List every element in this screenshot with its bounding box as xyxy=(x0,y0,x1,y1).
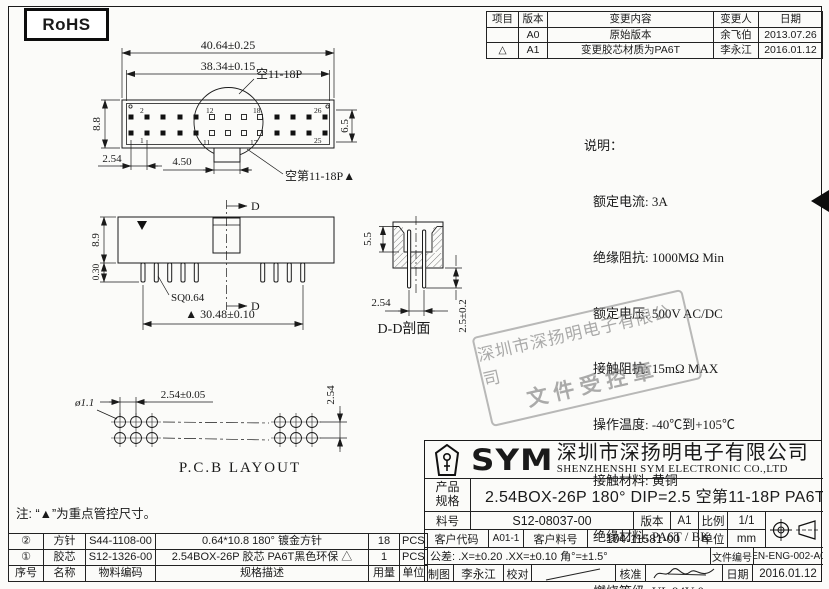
dim-inner-width: 38.34±0.15 xyxy=(201,59,256,73)
parts-row: ① 胶芯 S12-1326-00 2.54BOX-26P 胶芯 PA6T黑色环保… xyxy=(9,550,428,566)
date-label: 日期 xyxy=(723,565,753,582)
dim-opening-height: 6.5 xyxy=(339,119,351,133)
pcb-holes xyxy=(115,417,318,444)
part-no-label: 料号 xyxy=(425,512,471,530)
pin-number: 2 xyxy=(140,106,144,115)
section-title: D-D剖面 xyxy=(378,321,431,337)
part-name: 胶芯 xyxy=(44,550,86,566)
parts-row: ② 方针 S44-1108-00 0.64*10.8 180° 镀金方针 18 … xyxy=(9,534,428,550)
scale-label: 比例 xyxy=(699,512,728,530)
checked-signature xyxy=(534,566,614,582)
parts-table: ② 方针 S44-1108-00 0.64*10.8 180° 镀金方针 18 … xyxy=(8,533,428,582)
part-no-circle: ① xyxy=(9,550,44,566)
dim-body-height: 8.8 xyxy=(91,117,103,131)
pin-number: 17 xyxy=(250,138,258,147)
part-unit: PCS xyxy=(400,550,428,566)
pin-square-label: SQ0.64 xyxy=(171,292,205,304)
part-code: S12-1326-00 xyxy=(86,550,156,566)
part-desc: 2.54BOX-26P 胶芯 PA6T黑色环保 △ xyxy=(156,550,369,566)
dim-pin-span: ▲ 30.48±0.10 xyxy=(185,307,254,321)
control-dimension-note: 注: “▲”为重点管控尺寸。 xyxy=(16,503,156,522)
dim-side-height: 8.9 xyxy=(90,233,102,247)
drawing-sheet: RoHS 项目 版本 变更内容 变更人 日期 A0 原始版本 余飞伯 2013.… xyxy=(0,0,829,589)
part-qty: 1 xyxy=(369,550,400,566)
pins-solid xyxy=(129,115,328,136)
section-mark-top: D xyxy=(251,199,260,213)
pin-number: 1 xyxy=(140,136,144,145)
projection-angle-icon xyxy=(769,515,821,545)
dim-hole-diameter: ø1.1 xyxy=(74,397,94,409)
label-empty-pins-top: 空11-18P xyxy=(256,67,303,81)
dim-pin-protrusion: 2.5±0.2 xyxy=(457,299,469,333)
part-no-value: S12-08037-00 xyxy=(471,512,634,530)
product-spec-label-2: 规格 xyxy=(435,495,459,509)
inspection-triangle-mark xyxy=(137,221,147,230)
dim-pcb-pitch-h: 2.54±0.05 xyxy=(161,389,206,401)
polarizing-notch xyxy=(214,148,240,162)
parts-col-desc: 规格描述 xyxy=(156,566,369,582)
pin-number: 18 xyxy=(253,106,261,115)
part-code: S44-1108-00 xyxy=(86,534,156,550)
customer-code-label: 客户代码 xyxy=(425,530,489,548)
doc-no-value: EN-ENG-002-A0 xyxy=(754,548,823,565)
tolerance-note: 公差: .X=±0.20 .XX=±0.10 角°=±1.5° xyxy=(425,548,711,565)
pin-number: 26 xyxy=(314,106,322,115)
section-view-drawing: 5.5 2.54 2.5±0.2 D-D剖面 xyxy=(362,216,469,337)
sym-logo-icon xyxy=(431,444,463,476)
side-view-pins xyxy=(141,263,305,282)
approved-signature xyxy=(648,565,720,582)
part-name: 方针 xyxy=(44,534,86,550)
doc-no-label: 文件编号 xyxy=(711,548,754,565)
pin-number: 12 xyxy=(206,106,214,115)
parts-col-unit: 单位 xyxy=(400,566,428,582)
dim-standoff: 0.30 xyxy=(92,263,102,280)
pcb-layout-title: P.C.B LAYOUT xyxy=(179,460,301,476)
edge-center-mark xyxy=(811,190,829,212)
pin-number: 25 xyxy=(314,136,322,145)
parts-col-code: 物料编码 xyxy=(86,566,156,582)
parts-col-no: 序号 xyxy=(9,566,44,582)
part-unit: PCS xyxy=(400,534,428,550)
pcb-crosshairs xyxy=(111,413,321,447)
parts-col-qty: 用量 xyxy=(369,566,400,582)
version-value: A1 xyxy=(671,512,699,530)
pcb-layout-drawing: ø1.1 2.54±0.05 2.54 P.C.B LAYOUT xyxy=(74,385,347,476)
part-desc: 0.64*10.8 180° 镀金方针 xyxy=(156,534,369,550)
drawn-by: 李永江 xyxy=(454,565,504,582)
customer-part-label: 客户料号 xyxy=(524,530,588,548)
label-empty-pins-bottom: 空第11-18P▲ xyxy=(285,169,355,183)
pin-number: 11 xyxy=(203,138,210,147)
checked-label: 校对 xyxy=(504,565,532,582)
top-view-drawing: 40.64±0.25 38.34±0.15 8.8 6.5 2.54 4.50 … xyxy=(91,38,357,183)
parts-col-name: 名称 xyxy=(44,566,86,582)
parts-header-row: 序号 名称 物料编码 规格描述 用量 单位 xyxy=(9,566,428,582)
dim-cavity-depth: 5.5 xyxy=(362,232,374,246)
title-block: SYM 深圳市深扬明电子有限公司 SHENZHENSHI SYM ELECTRO… xyxy=(424,440,822,581)
approved-label: 核准 xyxy=(616,565,646,582)
product-spec-label-1: 产品 xyxy=(435,481,459,495)
sym-logo-text: SYM xyxy=(471,443,554,477)
side-view-drawing: D D 8.9 0.30 SQ0.64 ▲ 30.48±0.10 xyxy=(90,199,334,330)
part-qty: 18 xyxy=(369,534,400,550)
unit-label: 单位 xyxy=(699,530,728,548)
drawn-label: 制图 xyxy=(425,565,454,582)
dim-section-pitch: 2.54 xyxy=(371,297,391,309)
pins-empty-11-18 xyxy=(210,115,263,136)
date-value: 2016.01.12 xyxy=(753,565,823,582)
company-name-en: SHENZHENSHI SYM ELECTRONIC CO.,LTD xyxy=(557,464,809,476)
dim-pin-pitch: 2.54 xyxy=(102,153,122,165)
dim-overall-width: 40.64±0.25 xyxy=(201,38,256,52)
company-name-cn: 深圳市深扬明电子有限公司 xyxy=(557,443,809,464)
dim-pcb-pitch-v: 2.54 xyxy=(325,385,337,405)
dim-notch-width: 4.50 xyxy=(172,156,192,168)
customer-code-value: A01-1 xyxy=(489,530,524,548)
part-no-circle: ② xyxy=(9,534,44,550)
scale-value: 1/1 xyxy=(728,512,766,530)
product-spec-value: 2.54BOX-26P 180° DIP=2.5 空第11-18P PA6T xyxy=(471,479,823,512)
unit-value: mm xyxy=(728,530,766,548)
version-label: 版本 xyxy=(634,512,671,530)
customer-part-value: 104-11581-00 xyxy=(588,530,699,548)
